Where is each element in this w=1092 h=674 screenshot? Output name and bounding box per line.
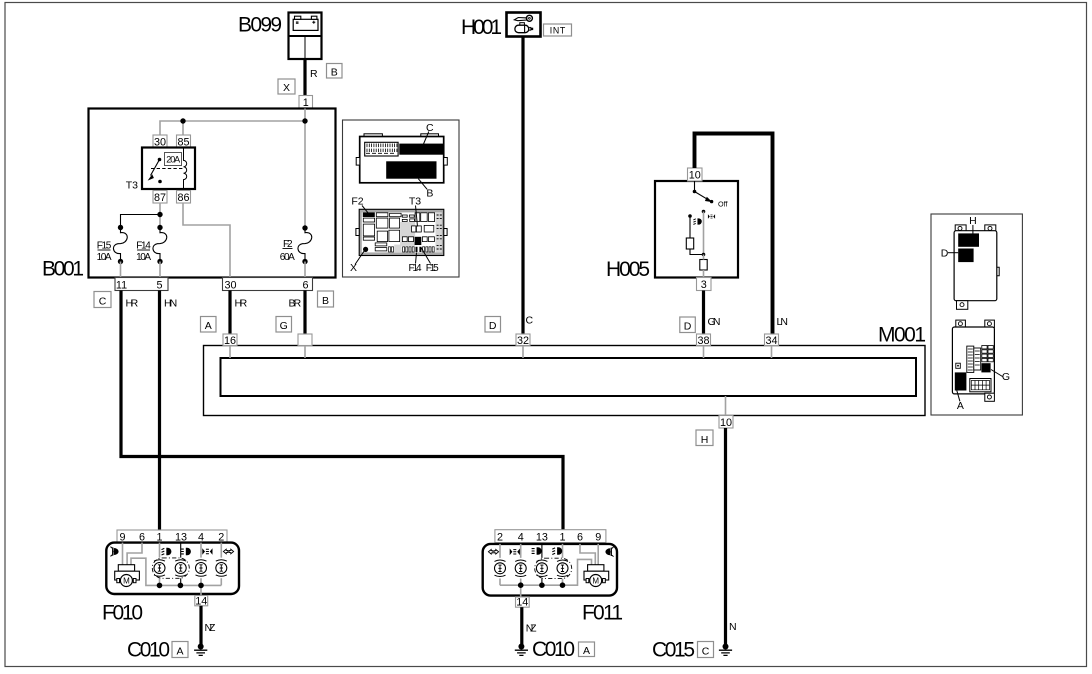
svg-text:A: A — [583, 645, 590, 657]
svg-text:6: 6 — [577, 531, 583, 543]
svg-text:C: C — [426, 122, 434, 134]
svg-text:C: C — [702, 645, 710, 657]
svg-text:D: D — [941, 248, 949, 260]
svg-text:F011: F011 — [582, 602, 623, 625]
svg-text:C: C — [99, 295, 107, 307]
svg-text:9: 9 — [595, 531, 601, 543]
svg-text:B: B — [331, 66, 338, 78]
svg-text:A: A — [957, 400, 964, 412]
svg-text:NZ: NZ — [526, 622, 537, 634]
svg-text:1: 1 — [559, 531, 565, 543]
svg-text:D: D — [684, 321, 692, 333]
svg-text:INT: INT — [550, 25, 566, 35]
svg-text:3: 3 — [701, 279, 707, 291]
svg-text:87: 87 — [154, 192, 166, 204]
svg-text:M001: M001 — [878, 324, 926, 347]
svg-text:G: G — [280, 320, 288, 332]
svg-text:C010: C010 — [532, 638, 575, 661]
svg-text:F15: F15 — [426, 263, 439, 274]
svg-text:B: B — [426, 187, 433, 199]
svg-text:C010: C010 — [127, 639, 170, 662]
svg-text:F14: F14 — [409, 263, 422, 274]
svg-text:20A: 20A — [166, 155, 180, 165]
svg-text:10A: 10A — [97, 252, 112, 263]
svg-text:H001: H001 — [461, 16, 502, 39]
svg-text:4: 4 — [518, 531, 524, 543]
svg-text:B099: B099 — [238, 14, 282, 37]
svg-text:32: 32 — [517, 335, 529, 347]
svg-text:11: 11 — [116, 280, 127, 292]
svg-text:30: 30 — [224, 280, 236, 292]
svg-text:86: 86 — [177, 192, 189, 204]
svg-text:5: 5 — [156, 280, 162, 292]
svg-text:B: B — [322, 295, 329, 307]
svg-text:LN: LN — [777, 316, 788, 328]
svg-text:X: X — [283, 82, 290, 94]
svg-text:10A: 10A — [136, 252, 151, 263]
svg-text:NZ: NZ — [205, 622, 216, 634]
svg-text:38: 38 — [697, 335, 709, 347]
svg-text:10: 10 — [720, 417, 732, 429]
svg-text:13: 13 — [536, 531, 548, 543]
svg-text:F010: F010 — [102, 602, 143, 625]
svg-text:G: G — [1002, 371, 1010, 383]
svg-text:B001: B001 — [42, 258, 84, 281]
svg-text:C: C — [526, 314, 534, 326]
svg-text:A: A — [205, 320, 212, 332]
svg-text:10: 10 — [689, 170, 701, 182]
svg-text:D: D — [489, 320, 497, 332]
svg-text:6: 6 — [302, 280, 308, 292]
svg-text:GN: GN — [708, 316, 721, 328]
svg-text:A: A — [176, 645, 183, 657]
svg-text:C015: C015 — [652, 639, 695, 662]
svg-text:HR: HR — [235, 297, 248, 309]
svg-text:Off: Off — [718, 200, 727, 209]
svg-text:14: 14 — [195, 595, 207, 607]
svg-text:2: 2 — [497, 531, 503, 543]
svg-text:14: 14 — [516, 597, 528, 609]
svg-text:T3: T3 — [126, 180, 138, 192]
svg-text:HR: HR — [126, 297, 139, 309]
svg-text:16: 16 — [224, 335, 236, 347]
svg-text:1: 1 — [303, 97, 309, 109]
svg-text:HN: HN — [164, 297, 177, 309]
svg-text:H005: H005 — [606, 258, 650, 281]
svg-text:BR: BR — [289, 297, 302, 309]
svg-text:60A: 60A — [280, 252, 295, 263]
svg-text:H: H — [701, 434, 709, 446]
svg-text:34: 34 — [765, 335, 777, 347]
svg-text:R: R — [310, 68, 318, 80]
svg-text:N: N — [729, 621, 736, 633]
